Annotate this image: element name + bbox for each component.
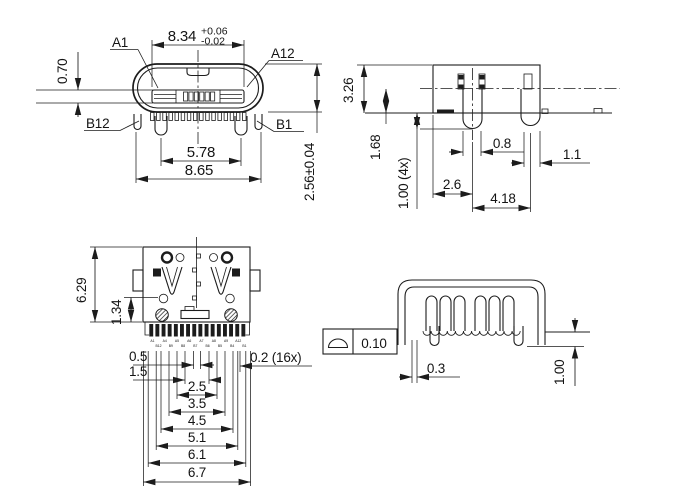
svg-text:B1: B1 [242, 344, 246, 348]
front-leg-right [235, 116, 247, 135]
dim-edge-to-pin: 2.6 [443, 177, 461, 192]
dim-leg-span: 5.78 [187, 144, 215, 161]
dim-front-depth: 1.34 [109, 299, 124, 325]
label-a12: A12 [271, 46, 294, 61]
dim-front-width-tol-minus: -0.02 [201, 36, 225, 48]
svg-text:A8: A8 [212, 339, 216, 343]
dim-pitch-b: 1.5 [129, 364, 147, 379]
solder-pad-right [225, 309, 238, 322]
bottom-view: A1 A4 A5 A6 A7 A8 A9 A12 B12 B9 B8 B7 B6… [74, 237, 312, 486]
rear-contact-fingers [423, 296, 520, 335]
dim-leg-width: 1.1 [563, 147, 581, 162]
dim-center-height: 1.68 [368, 135, 383, 160]
dim-tongue-thickness: 0.70 [55, 59, 70, 84]
pin-name-labels: A1 A4 A5 A6 A7 A8 A9 A12 B12 B9 B8 B7 B6… [150, 339, 246, 348]
rear-view: 0.10 0.3 1.00 [323, 280, 590, 386]
dim-side-height: 3.26 [341, 78, 356, 103]
pin-pitch-dimensions: 0.5 1.5 0.2 (16x) 2.5 3.5 4.5 5.1 6.1 6.… [129, 349, 312, 486]
dim-front-height: 2.56±0.04 [302, 142, 317, 201]
profile-of-a-surface-icon [329, 339, 348, 348]
dim-pitch-a: 0.5 [129, 349, 147, 364]
svg-text:B5: B5 [218, 344, 222, 348]
dim-smt-pin-width: 0.2 (16x) [250, 350, 301, 365]
dim-leg-protrusion: 1.00 [552, 360, 567, 385]
dim-pin-width: 0.8 [493, 136, 511, 151]
svg-text:A9: A9 [224, 339, 228, 343]
solder-pad-left [156, 309, 169, 322]
svg-text:A7: A7 [199, 339, 203, 343]
dim-span-6-7: 6.7 [188, 465, 206, 480]
dim-gap: 0.3 [427, 361, 445, 376]
dim-pin-to-leg: 4.18 [490, 191, 515, 206]
dim-span-5-1: 5.1 [188, 430, 206, 445]
svg-text:A4: A4 [163, 339, 167, 343]
svg-text:A12: A12 [235, 339, 241, 343]
dim-span-6-1: 6.1 [188, 447, 206, 462]
dim-depth: 6.29 [74, 278, 89, 303]
side-board-lock [521, 74, 540, 126]
svg-text:A6: A6 [187, 339, 191, 343]
label-b1: B1 [276, 117, 292, 132]
svg-text:B12: B12 [155, 344, 161, 348]
svg-text:B4: B4 [230, 344, 234, 348]
dim-overall-width: 8.65 [185, 162, 213, 179]
rear-leg-left [430, 326, 439, 346]
svg-text:B6: B6 [206, 344, 210, 348]
latch-right [211, 267, 231, 294]
front-view: 8.34 +0.06 -0.02 A1 A12 B12 B1 0.70 5.78… [36, 26, 322, 202]
svg-text:A1: A1 [150, 339, 154, 343]
smt-pin-row [145, 322, 250, 337]
dim-span-4-5: 4.5 [188, 413, 206, 428]
dim-span-3-5: 3.5 [188, 396, 206, 411]
label-b12: B12 [86, 116, 109, 131]
latch-left [162, 267, 182, 294]
dim-span-2-5: 2.5 [188, 379, 206, 394]
rear-leg-right [514, 326, 523, 346]
gdt-profile-tolerance: 0.10 [361, 336, 386, 351]
technical-drawing-usb-c-connector: 8.34 +0.06 -0.02 A1 A12 B12 B1 0.70 5.78… [0, 0, 690, 500]
svg-text:B7: B7 [193, 344, 197, 348]
svg-text:B9: B9 [169, 344, 173, 348]
side-view: 3.26 1.68 1.00 (4x) 0.8 1.1 2.6 4.18 [341, 65, 620, 212]
svg-text:A5: A5 [175, 339, 179, 343]
drawing-sheet: 8.34 +0.06 -0.02 A1 A12 B12 B1 0.70 5.78… [0, 0, 690, 500]
dim-front-width: 8.34 [168, 28, 196, 45]
rear-shell-inner [405, 287, 538, 345]
label-a1: A1 [112, 35, 128, 50]
svg-text:B8: B8 [181, 344, 185, 348]
gdt-frame: 0.10 [323, 329, 397, 354]
dim-leg-length: 1.00 (4x) [396, 158, 411, 209]
